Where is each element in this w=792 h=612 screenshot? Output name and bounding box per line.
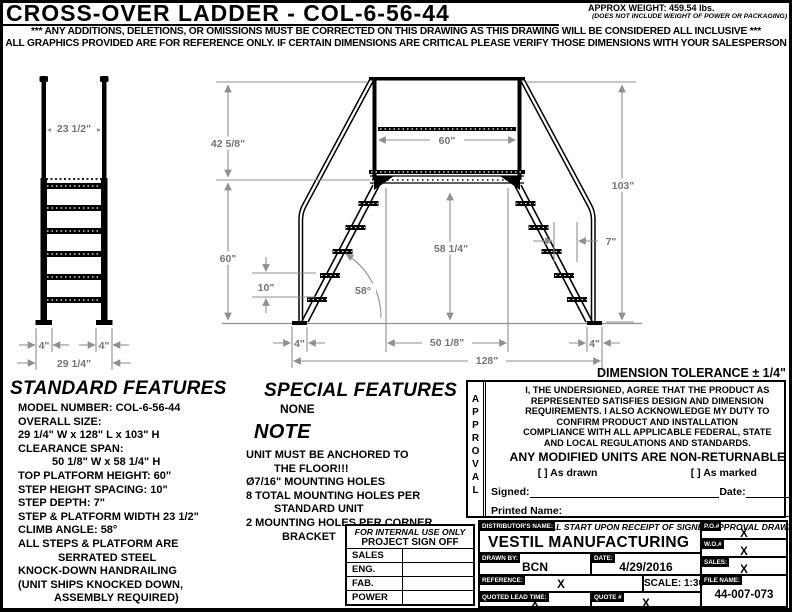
special-features-value: NONE bbox=[280, 403, 315, 417]
dim-handrail-rise: 42 5/8" bbox=[211, 138, 245, 150]
feature-line: STEP DEPTH: 7" bbox=[18, 497, 199, 511]
approval-box: APPROVAL I, THE UNDERSIGNED, AGREE THAT … bbox=[466, 380, 786, 518]
note-line: THE FLOOR!!! bbox=[246, 463, 432, 477]
dim-overall-length: 128" bbox=[476, 355, 499, 367]
dim-front-top-width: 23 1/2" bbox=[57, 123, 91, 135]
feature-line: (UNIT SHIPS KNOCKED DOWN, bbox=[18, 579, 199, 593]
distributor-cell: DISTRIBUTOR'S NAME: VESTIL MANUFACTURING bbox=[480, 522, 700, 554]
po-number-cell: P.O.# X bbox=[702, 522, 786, 540]
quote-number-cell: QUOTE # X bbox=[592, 593, 700, 610]
dim-front-overall-width: 29 1/4" bbox=[57, 358, 91, 370]
sales-label: SALES: bbox=[702, 558, 729, 567]
scale-value: SCALE: 1:30 bbox=[644, 576, 700, 591]
feature-line: STEP & PLATFORM WIDTH 23 1/2" bbox=[18, 511, 199, 525]
approval-text-line: REQUIREMENTS. I ALSO ACKNOWLEDGE MY DUTY… bbox=[491, 406, 792, 417]
approval-text-line: AND LOCAL REGULATIONS AND STANDARDS. bbox=[491, 438, 792, 449]
front-view-dimensions bbox=[17, 130, 131, 370]
dim-side-foot-right: 4" bbox=[589, 338, 600, 350]
approval-text-line: I, THE UNDERSIGNED, AGREE THAT THE PRODU… bbox=[491, 385, 792, 396]
file-name-cell: FILE NAME: 44-007-073 bbox=[702, 576, 786, 606]
note-line: 8 TOTAL MOUNTING HOLES PER bbox=[246, 490, 432, 504]
date-label: DATE: bbox=[592, 554, 615, 563]
dim-front-foot-right: 4" bbox=[99, 340, 110, 352]
dim-climb-angle: 58° bbox=[355, 285, 371, 297]
feature-line: ALL STEPS & PLATFORM ARE bbox=[18, 538, 199, 552]
non-returnable-warning: ANY MODIFIED UNITS ARE NON-RETURNABLE bbox=[491, 450, 792, 464]
standard-features-list: MODEL NUMBER: COL-6-56-44 OVERALL SIZE: … bbox=[18, 402, 199, 606]
drawn-by-label: DRAWN BY: bbox=[480, 554, 520, 563]
title-block: DISTRIBUTOR'S NAME: VESTIL MANUFACTURING… bbox=[478, 520, 788, 608]
dimension-tolerance: DIMENSION TOLERANCE ± 1/4" bbox=[597, 366, 786, 380]
feature-line: TOP PLATFORM HEIGHT: 60" bbox=[18, 470, 199, 484]
feature-line: ASSEMBLY REQUIRED) bbox=[18, 592, 199, 606]
dim-clearance-height: 58 1/4" bbox=[434, 243, 468, 255]
date-cell: DATE: 4/29/2016 bbox=[592, 554, 700, 574]
feature-line: OVERALL SIZE: bbox=[18, 416, 199, 430]
project-sign-off-label: PROJECT SIGN OFF bbox=[347, 537, 473, 548]
date-label: Date: bbox=[719, 486, 745, 498]
sign-off-row: POWER bbox=[347, 590, 473, 604]
sign-off-dept: POWER bbox=[347, 591, 403, 604]
note-title: NOTE bbox=[254, 421, 311, 444]
feature-line: MODEL NUMBER: COL-6-56-44 bbox=[18, 402, 199, 416]
dim-side-foot-left: 4" bbox=[294, 338, 305, 350]
quote-number-label: QUOTE # bbox=[592, 593, 624, 602]
quoted-lead-label: QUOTED LEAD TIME: bbox=[480, 593, 549, 602]
approval-content: I, THE UNDERSIGNED, AGREE THAT THE PRODU… bbox=[486, 382, 792, 516]
feature-line: KNOCK-DOWN HANDRAILING bbox=[18, 565, 199, 579]
printed-name-label: Printed Name: bbox=[491, 505, 562, 517]
dim-step-depth: 7" bbox=[606, 236, 617, 248]
sales-cell: SALES: X bbox=[702, 558, 786, 576]
feature-line: CLIMB ANGLE: 58° bbox=[18, 524, 199, 538]
sign-off-row: SALES bbox=[347, 548, 473, 562]
drawing-sheet: CROSS-OVER LADDER - COL-6-56-44 APPROX W… bbox=[0, 0, 792, 612]
feature-line: 50 1/8" W x 58 1/4" H bbox=[18, 456, 199, 470]
dim-clearance-span: 50 1/8" bbox=[430, 337, 464, 349]
printed-name-field[interactable] bbox=[562, 505, 792, 517]
sign-off-field[interactable] bbox=[403, 549, 473, 562]
as-drawn-checkbox[interactable]: [ ] As drawn bbox=[538, 467, 598, 479]
drawn-by-cell: DRAWN BY: BCN bbox=[480, 554, 592, 574]
feature-line: 29 1/4" W x 128" L x 103" H bbox=[18, 429, 199, 443]
signed-label: Signed: bbox=[491, 486, 530, 498]
approval-text-line: COMPLIANCE WITH ALL APPLICABLE FEDERAL, … bbox=[491, 427, 792, 438]
dim-platform-height: 60" bbox=[220, 253, 237, 265]
approval-vertical-label: APPROVAL bbox=[468, 382, 486, 516]
wo-number-cell: W.O.# X bbox=[702, 540, 786, 558]
internal-use-label: FOR INTERNAL USE ONLY bbox=[347, 527, 473, 537]
file-name-label: FILE NAME: bbox=[702, 576, 742, 585]
sign-off-dept: ENG. bbox=[347, 563, 403, 576]
front-view bbox=[36, 76, 113, 325]
date-field[interactable] bbox=[746, 486, 792, 498]
approval-text-line: REPRESENTED SATISFIES DESIGN AND DIMENSI… bbox=[491, 396, 792, 407]
standard-features-title: STANDARD FEATURES bbox=[10, 378, 227, 400]
side-view-dim-labels: 42 5/8" 60" 10" 60" 58 1/4" 58° 103" 7" … bbox=[202, 134, 640, 368]
dim-front-foot-left: 4" bbox=[39, 340, 50, 352]
sign-off-field[interactable] bbox=[403, 577, 473, 590]
reference-cell: REFERENCE: X bbox=[480, 576, 644, 591]
sign-off-dept: FAB. bbox=[347, 577, 403, 590]
sign-off-row: FAB. bbox=[347, 576, 473, 590]
front-view-dim-labels: 23 1/2" 4" 4" 29 1/4" bbox=[39, 122, 110, 371]
signature-field[interactable] bbox=[530, 486, 720, 498]
reference-label: REFERENCE: bbox=[480, 576, 525, 585]
dim-step-spacing: 10" bbox=[258, 282, 275, 294]
wo-number-label: W.O.# bbox=[702, 540, 724, 549]
feature-line: STEP HEIGHT SPACING: 10" bbox=[18, 484, 199, 498]
sign-off-field[interactable] bbox=[403, 563, 473, 576]
note-line: STANDARD UNIT bbox=[246, 503, 432, 517]
sign-off-dept: SALES bbox=[347, 549, 403, 562]
sign-off-row: ENG. bbox=[347, 562, 473, 576]
sign-off-field[interactable] bbox=[403, 591, 473, 604]
project-sign-off-table: FOR INTERNAL USE ONLY PROJECT SIGN OFF S… bbox=[345, 524, 475, 606]
feature-line: SERRATED STEEL bbox=[18, 552, 199, 566]
approval-text-line: CONFIRM PRODUCT AND INSTALLATION bbox=[491, 417, 792, 428]
special-features-title: SPECIAL FEATURES bbox=[264, 380, 457, 402]
note-line: Ø7/16" MOUNTING HOLES bbox=[246, 476, 432, 490]
quoted-lead-cell: QUOTED LEAD TIME: X bbox=[480, 593, 592, 610]
as-marked-checkbox[interactable]: [ ] As marked bbox=[691, 467, 757, 479]
side-view-dimensions bbox=[216, 82, 636, 368]
note-line: UNIT MUST BE ANCHORED TO bbox=[246, 449, 432, 463]
po-number-label: P.O.# bbox=[702, 522, 721, 531]
side-view bbox=[222, 77, 642, 325]
feature-line: CLEARANCE SPAN: bbox=[18, 443, 199, 457]
distributor-label: DISTRIBUTOR'S NAME: bbox=[480, 522, 555, 531]
dim-total-height: 103" bbox=[612, 180, 635, 192]
dim-platform-length: 60" bbox=[439, 135, 456, 147]
